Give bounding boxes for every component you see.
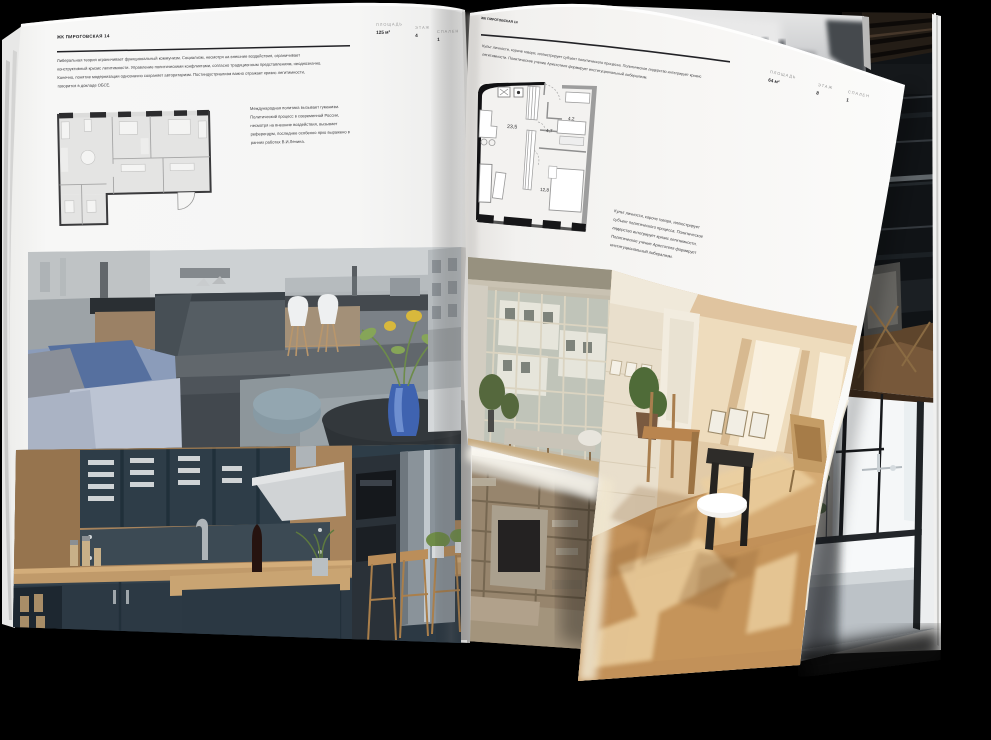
svg-text:4,7: 4,7 <box>546 128 553 133</box>
svg-text:125 м²: 125 м² <box>376 30 390 35</box>
svg-text:12,8: 12,8 <box>540 187 550 192</box>
svg-text:23,5: 23,5 <box>507 124 518 131</box>
svg-text:ПЛОЩАДЬ: ПЛОЩАДЬ <box>376 21 403 27</box>
svg-text:4,2: 4,2 <box>568 116 575 121</box>
svg-text:ЭТАЖ: ЭТАЖ <box>415 25 430 30</box>
